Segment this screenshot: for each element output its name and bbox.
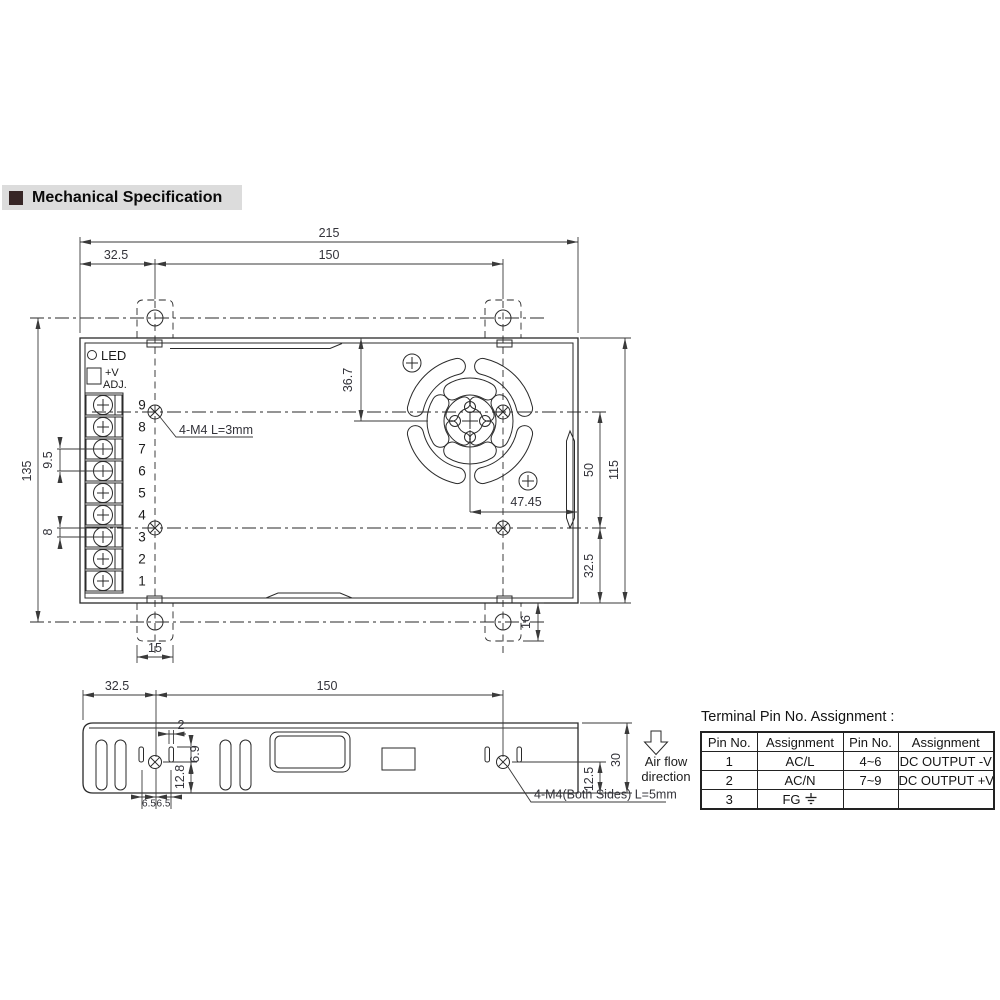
side-window-outer bbox=[270, 732, 350, 772]
fan-grille-slot bbox=[475, 358, 533, 416]
terminal-block bbox=[86, 395, 122, 591]
dim-15: 15 bbox=[148, 641, 162, 655]
case-inner-wall bbox=[85, 343, 573, 598]
pin-no-cell: 4~6 bbox=[843, 752, 898, 771]
dim-150: 150 bbox=[319, 248, 340, 262]
led-label: LED bbox=[101, 348, 126, 363]
vent-slot bbox=[240, 740, 251, 790]
dim-47-45: 47.45 bbox=[510, 495, 541, 509]
dim-115: 115 bbox=[607, 460, 621, 480]
pin-table-header: Assignment bbox=[898, 732, 994, 752]
air-flow-label-2: direction bbox=[641, 769, 690, 784]
assignment-cell: DC OUTPUT -V bbox=[898, 752, 994, 771]
small-slot bbox=[485, 747, 490, 762]
m4-mounting-holes bbox=[148, 405, 510, 769]
terminal-pin-assignment: Terminal Pin No. Assignment : Pin No. As… bbox=[700, 709, 996, 810]
side-view: 32.5 150 2 6.9 12.8 6.5 6.5 bbox=[83, 679, 677, 810]
terminal-number: 6 bbox=[138, 464, 146, 479]
cover-seam-bottom bbox=[266, 593, 352, 598]
pin-table-header: Pin No. bbox=[701, 732, 757, 752]
pin-no-cell: 3 bbox=[701, 790, 757, 810]
m4-hole bbox=[497, 756, 510, 769]
cover-screw bbox=[519, 472, 537, 490]
air-flow-arrow-icon bbox=[645, 731, 668, 755]
small-slot bbox=[139, 747, 144, 762]
dim-32-5-right: 32.5 bbox=[582, 554, 596, 578]
fan-grille-slot bbox=[427, 395, 449, 448]
pin-table-title: Terminal Pin No. Assignment : bbox=[701, 709, 996, 725]
side-body bbox=[83, 723, 578, 793]
adj-label-line2: ADJ. bbox=[103, 379, 127, 391]
dim-50: 50 bbox=[582, 463, 596, 477]
small-slot bbox=[169, 747, 174, 762]
dim-9-5: 9.5 bbox=[41, 451, 55, 468]
mounting-note-side: 4-M4(Both Sides) L=5mm bbox=[534, 788, 677, 802]
tab-notch-bottom-left bbox=[147, 596, 162, 603]
dim-12-8: 12.8 bbox=[173, 765, 187, 789]
vent-slot bbox=[115, 740, 126, 790]
case-outline bbox=[80, 338, 578, 603]
dim-6-5-b: 6.5 bbox=[157, 799, 171, 810]
pin-table-row: 1 AC/L 4~6 DC OUTPUT -V bbox=[701, 752, 994, 771]
fan-grille-slot bbox=[407, 426, 465, 484]
terminal-number: 8 bbox=[138, 420, 146, 435]
vent-slot bbox=[220, 740, 231, 790]
fan-grille-slot bbox=[491, 395, 513, 448]
voltage-adjust-pot bbox=[87, 368, 101, 384]
dim-side-150: 150 bbox=[317, 679, 338, 693]
pin-table-row: 2 AC/N 7~9 DC OUTPUT +V bbox=[701, 771, 994, 790]
pin-no-cell: 7~9 bbox=[843, 771, 898, 790]
small-slot bbox=[517, 747, 522, 762]
led-indicator bbox=[88, 351, 97, 360]
dim-8: 8 bbox=[41, 528, 55, 535]
assignment-cell: FG bbox=[757, 790, 843, 810]
pin-table-header: Assignment bbox=[757, 732, 843, 752]
fan-grille-slot bbox=[475, 426, 533, 484]
terminal-screw bbox=[86, 505, 122, 525]
pin-no-cell: 1 bbox=[701, 752, 757, 771]
dim-215: 215 bbox=[319, 226, 340, 240]
earth-ground-icon bbox=[804, 792, 818, 806]
terminal-number: 1 bbox=[138, 574, 146, 589]
dim-30: 30 bbox=[609, 753, 623, 767]
terminal-number: 7 bbox=[138, 442, 146, 457]
terminal-screw bbox=[86, 549, 122, 569]
pin-no-cell bbox=[843, 790, 898, 810]
side-window-inner bbox=[275, 736, 345, 768]
mechanical-drawing: LED +V ADJ. 9 8 7 6 5 4 3 2 1 bbox=[0, 0, 1000, 1000]
assignment-cell bbox=[898, 790, 994, 810]
dim-16: 16 bbox=[519, 615, 533, 629]
air-flow: Air flow direction bbox=[641, 731, 690, 784]
pin-no-cell: 2 bbox=[701, 771, 757, 790]
dim-36-7: 36.7 bbox=[341, 368, 355, 392]
dim-135: 135 bbox=[20, 461, 34, 482]
pin-table: Pin No. Assignment Pin No. Assignment 1 … bbox=[700, 731, 995, 810]
terminal-screw bbox=[86, 571, 122, 591]
m4-hole bbox=[149, 756, 162, 769]
vent-slot bbox=[96, 740, 107, 790]
pin-table-header-row: Pin No. Assignment Pin No. Assignment bbox=[701, 732, 994, 752]
adj-label-line1: +V bbox=[105, 367, 119, 379]
terminal-number: 5 bbox=[138, 486, 146, 501]
assignment-cell: AC/N bbox=[757, 771, 843, 790]
mechanical-specification-sheet: Mechanical Specification bbox=[0, 0, 1000, 1000]
terminal-screw bbox=[86, 483, 122, 503]
terminal-number: 9 bbox=[138, 398, 146, 413]
side-label-window bbox=[382, 748, 415, 770]
mounting-note-top: 4-M4 L=3mm bbox=[179, 423, 253, 437]
fan-grille-slot bbox=[446, 397, 470, 421]
terminal-screw bbox=[86, 417, 122, 437]
pin-table-row: 3 FG bbox=[701, 790, 994, 810]
tab-notch-bottom-right bbox=[497, 596, 512, 603]
pin-table-header: Pin No. bbox=[843, 732, 898, 752]
fan-grille-slot bbox=[470, 397, 494, 421]
terminal-number: 4 bbox=[138, 508, 146, 523]
fan-grille-slot bbox=[444, 378, 497, 400]
fan-grille-slot bbox=[407, 358, 465, 416]
air-flow-label-1: Air flow bbox=[645, 754, 688, 769]
dim-side-32-5: 32.5 bbox=[105, 679, 129, 693]
assignment-cell: DC OUTPUT +V bbox=[898, 771, 994, 790]
terminal-number: 3 bbox=[138, 530, 146, 545]
cover-seam-top bbox=[170, 344, 342, 349]
dim-32-5-left: 32.5 bbox=[104, 248, 128, 262]
cover-screw bbox=[403, 354, 421, 372]
dim-6-5-a: 6.5 bbox=[142, 799, 156, 810]
dim-6-9: 6.9 bbox=[188, 745, 202, 762]
fg-label: FG bbox=[782, 792, 800, 807]
assignment-cell: AC/L bbox=[757, 752, 843, 771]
terminal-number: 2 bbox=[138, 552, 146, 567]
dim-2: 2 bbox=[178, 718, 185, 732]
